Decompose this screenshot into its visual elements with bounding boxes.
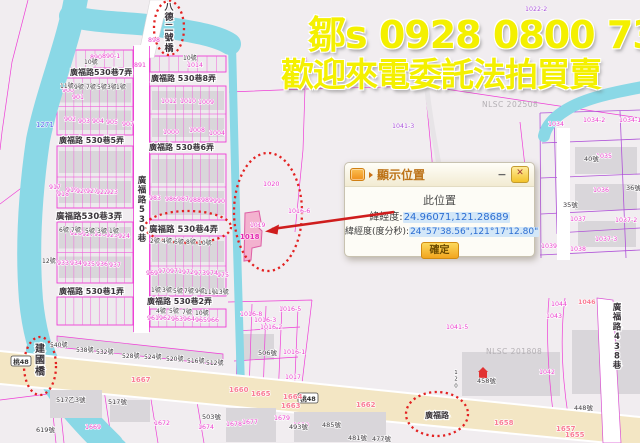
map-label: 540號 <box>50 341 67 349</box>
map-label: 1020 <box>263 180 280 188</box>
map-label: 1037-3 <box>595 236 617 243</box>
map-label: 1016-1 <box>283 349 305 356</box>
map-label: NLSC 201808 <box>486 347 542 356</box>
map-label: 975 <box>217 272 229 279</box>
map-label: 619號 <box>36 425 55 434</box>
map-label: 德 <box>164 11 173 23</box>
latlng-row: 緯經度:24.96071,121.28689 <box>345 211 534 225</box>
map-label: 9號 <box>74 83 84 91</box>
dialog-titlebar[interactable]: 顯示位置 − ✕ <box>345 163 534 187</box>
map-label: 1016-3 <box>254 317 276 324</box>
dms-label: 緯經度(度分秒): <box>345 227 409 237</box>
map-label: 1664 <box>283 393 303 401</box>
map-label: 935 <box>83 261 95 268</box>
map-label: 3號 <box>97 227 107 235</box>
map-label: 503號 <box>202 412 221 421</box>
map-label: 965 <box>195 317 207 324</box>
map-label: 1號 <box>109 227 119 235</box>
map-label: 路 <box>613 321 622 332</box>
map-label: 1036 <box>593 187 609 194</box>
right-lane-road <box>557 128 570 260</box>
map-label: 1669 <box>85 424 101 431</box>
dialog-body: 此位置 緯經度:24.96071,121.28689 緯經度(度分秒):24°5… <box>345 187 534 259</box>
map-label: 1016-2 <box>260 324 282 331</box>
map-label: 廣福路 530巷6弄 <box>149 142 214 152</box>
map-label: 904 <box>92 118 104 125</box>
map-label: 1037 <box>570 216 586 223</box>
map-label: 6號 <box>59 226 69 234</box>
map-label: 1034-1 <box>619 117 640 124</box>
map-label: 11號 <box>60 82 74 90</box>
map-label: 8號 <box>186 238 196 246</box>
map-label: 964 <box>183 316 195 323</box>
show-location-dialog: 顯示位置 − ✕ 此位置 緯經度:24.96071,121.28689 緯經度(… <box>344 162 535 257</box>
map-label: 4號 <box>156 307 166 315</box>
map-label: 923 <box>106 189 118 196</box>
map-label: 5號 <box>169 307 179 315</box>
map-label: 廣 <box>612 302 622 313</box>
map-label: 桃48 <box>300 394 316 403</box>
map-label: 36號 <box>626 183 640 192</box>
map-label: 969 <box>146 270 158 277</box>
minimize-button[interactable]: − <box>496 169 508 181</box>
close-button[interactable]: ✕ <box>511 166 529 183</box>
map-label: 1043 <box>546 313 562 320</box>
map-label: 1004 <box>209 130 225 137</box>
map-label: 10號 <box>84 58 98 66</box>
map-label: 532號 <box>96 348 113 356</box>
map-label: 廣福路 530巷5弄 <box>59 135 124 145</box>
confirm-button[interactable]: 確定 <box>421 242 459 259</box>
ad-welcome-text: 歡迎來電委託法拍買賣 <box>281 48 601 96</box>
dms-value: 24°57'38.56",121°17'12.80" <box>409 227 539 237</box>
map-label: 1018 <box>240 233 260 241</box>
map-label: 巷 <box>137 233 147 244</box>
map-label: 35號 <box>563 200 578 209</box>
map-label: 1046 <box>578 299 596 306</box>
map-label: 12號 <box>42 257 56 265</box>
map-label: 905 <box>106 119 118 126</box>
map-label: 1674 <box>198 424 214 431</box>
map-label: 1017 <box>285 374 301 381</box>
map-label: 1014 <box>187 62 203 69</box>
map-label: 961 <box>147 315 159 322</box>
dialog-title: 顯示位置 <box>377 166 425 183</box>
map-label: 890-1 <box>102 53 120 60</box>
map-label: 橋 <box>35 364 46 377</box>
location-heading: 此位置 <box>345 192 534 208</box>
dms-row: 緯經度(度分秒):24°57'38.56",121°17'12.80" <box>345 225 534 239</box>
map-label: 891 <box>134 62 146 69</box>
map-label: 廣福路530巷7弄 <box>70 67 132 77</box>
map-label: 1037-2 <box>615 217 637 224</box>
map-label: 福 <box>137 185 147 196</box>
map-label: 1041-3 <box>392 123 414 130</box>
map-label: 506號 <box>258 348 277 357</box>
map-label: 路 <box>138 194 147 205</box>
map-label: 481號 <box>348 433 367 442</box>
map-label: 橋 <box>164 42 174 54</box>
map-label: 廣福路 <box>425 410 450 420</box>
map-window-icon <box>350 168 365 181</box>
map-label: 1271 <box>36 121 54 129</box>
map-label: 898 <box>148 37 160 44</box>
map-label: 517乙3號 <box>56 395 86 404</box>
map-label: 1672 <box>154 420 170 427</box>
map-label: 1663 <box>281 402 301 410</box>
map-label: 477號 <box>372 434 391 443</box>
map-label: 1667 <box>131 376 151 384</box>
map-label: 4號 <box>162 237 172 245</box>
map-label: 八 <box>163 2 174 13</box>
map-label: 1679 <box>274 415 290 422</box>
map-label: 902 <box>64 116 76 123</box>
map-label: 7號 <box>71 226 81 234</box>
map-label: 973 <box>194 270 206 277</box>
map-label: 國 <box>35 354 45 366</box>
map-label: 2號 <box>150 237 160 245</box>
map-label: 1009 <box>198 99 214 106</box>
map-label: 建 <box>34 342 46 355</box>
map-label: 1010 <box>180 98 196 105</box>
latlng-label: 緯經度: <box>369 212 402 223</box>
map-label: 1660 <box>229 386 249 394</box>
map-label: NLSC 202508 <box>482 100 538 109</box>
map-label: 1000 <box>163 129 179 136</box>
map-label: 903 <box>78 118 90 125</box>
map-label: 517號 <box>108 397 127 406</box>
map-label: 廣福路 530巷1弄 <box>59 286 124 296</box>
map-label: 963 <box>171 316 183 323</box>
map-label: 1678 <box>226 421 242 428</box>
map-label: 1034-2 <box>583 117 605 124</box>
map-label: 983 <box>149 195 161 202</box>
map-label: 988 <box>189 197 201 204</box>
map-label: 0 <box>454 383 458 389</box>
map-label: 5 <box>139 205 145 215</box>
map-label: 524號 <box>144 353 161 361</box>
latlng-value: 24.96071,121.28689 <box>403 212 510 223</box>
map-label: 7號 <box>86 83 96 91</box>
map-label: 962 <box>159 315 171 322</box>
map-label: 520號 <box>166 355 183 363</box>
map-label: 966 <box>207 317 219 324</box>
map-label: 971 <box>170 268 182 275</box>
map-label: 1655 <box>565 431 585 439</box>
map-label: 7號 <box>184 287 194 295</box>
map-label: 1008 <box>189 127 205 134</box>
map-label: 二 <box>164 23 173 33</box>
map-application-window: 廣福路530巷7弄廣福路 530巷8弄廣福路 530巷5弄廣福路 530巷6弄廣… <box>0 0 640 443</box>
map-label: 1號 <box>151 286 161 294</box>
map-label: 990 <box>213 198 225 205</box>
map-label: 廣福路 530巷2弄 <box>147 296 212 306</box>
map-label: 號 <box>164 32 173 44</box>
map-label: 516號 <box>187 357 204 365</box>
map-label: 1012 <box>161 98 177 105</box>
map-label: 1662 <box>356 401 376 409</box>
map-label: 3 <box>614 342 620 352</box>
map-label: 917 <box>49 184 61 191</box>
map-label: 3號 <box>162 286 172 294</box>
map-label: 934 <box>70 260 82 267</box>
map-label: 528號 <box>122 352 139 360</box>
map-label: 8 <box>614 352 620 362</box>
map-label: 1 <box>454 370 458 376</box>
map-label: 1038 <box>570 246 586 253</box>
map-label: 907 <box>122 121 134 128</box>
map-label: 986 <box>165 196 177 203</box>
map-label: 1019 <box>250 222 265 229</box>
map-label: 1042 <box>539 369 555 376</box>
map-label: 493號 <box>289 422 308 431</box>
map-label: 7號 <box>182 308 192 316</box>
map-label: 4 <box>614 332 620 342</box>
map-label: 512號 <box>206 359 223 367</box>
map-label: 936 <box>96 261 108 268</box>
map-label: 廣福路 530巷8弄 <box>151 73 216 83</box>
map-label: 1677 <box>242 419 258 426</box>
map-label: 廣 <box>137 175 147 186</box>
map-label: 458號 <box>477 376 496 385</box>
map-label: 13號 <box>215 288 229 296</box>
map-label: 1665 <box>251 390 271 398</box>
map-label: 924 <box>118 233 130 240</box>
map-label: 1044 <box>551 301 567 308</box>
map-label: 485號 <box>322 420 341 429</box>
map-label: 10號 <box>198 239 212 247</box>
map-label: 1號 <box>116 83 126 91</box>
map-label: 5號 <box>97 83 107 91</box>
map-label: 1658 <box>494 419 514 427</box>
map-label: 5號 <box>85 227 95 235</box>
map-label: 989 <box>201 197 213 204</box>
map-label: 933 <box>57 260 69 267</box>
map-label: 448號 <box>574 403 593 412</box>
map-label: 987 <box>177 196 189 203</box>
map-label: 3 <box>139 215 145 225</box>
map-label: 0 <box>139 225 145 235</box>
map-label: 5號 <box>173 287 183 295</box>
map-label: 40號 <box>584 154 599 163</box>
map-label: 6號 <box>174 238 184 246</box>
map-label: 1016-6 <box>288 208 310 215</box>
map-label: 972 <box>182 269 194 276</box>
map-label: 1034 <box>548 121 564 128</box>
map-label: 538號 <box>76 346 93 354</box>
map-label: 巷 <box>612 360 622 371</box>
map-label: 901 <box>72 94 84 101</box>
map-label: 2 <box>454 377 458 383</box>
map-label: 廣福路 530巷4弄 <box>148 224 219 235</box>
map-label: 1039 <box>541 243 557 250</box>
map-label: 10號 <box>195 309 209 317</box>
map-label: 1041-5 <box>446 324 468 331</box>
map-label: 10號 <box>183 54 197 62</box>
map-label: 937 <box>109 262 121 269</box>
map-label: 桃48 <box>13 357 29 366</box>
map-label: 970 <box>158 268 170 275</box>
map-label: 1016-5 <box>279 306 301 313</box>
caret-icon <box>369 172 373 178</box>
map-label: 廣福路530巷3弄 <box>55 211 123 222</box>
map-label: 福 <box>612 312 622 323</box>
